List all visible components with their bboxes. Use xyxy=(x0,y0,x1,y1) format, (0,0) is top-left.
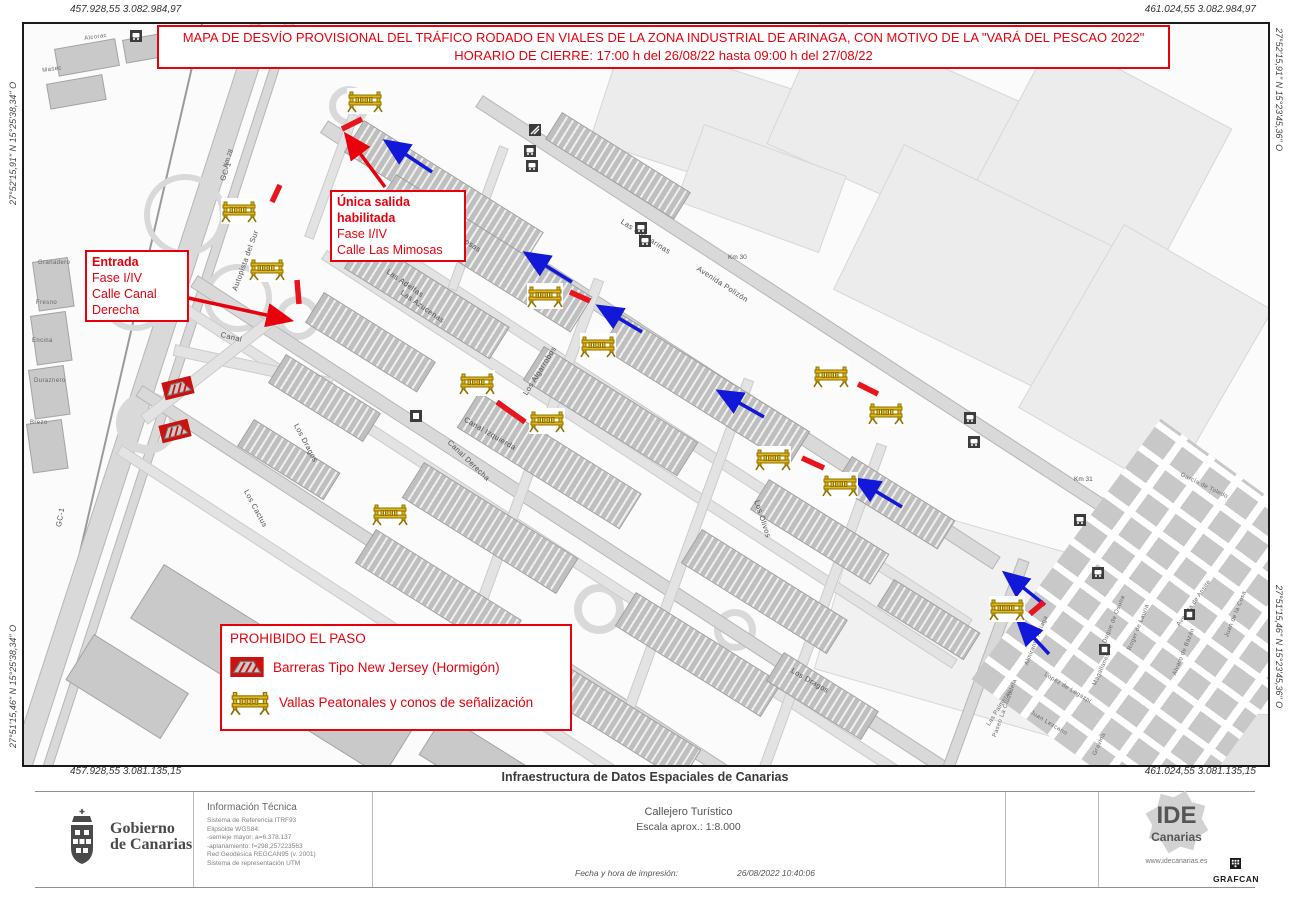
street-label: GC-1 xyxy=(54,507,66,528)
exit-callout-line: Única salida xyxy=(337,194,459,210)
street-label: Duraznero xyxy=(34,378,66,384)
canarias-coat-of-arms-icon xyxy=(63,808,101,866)
legend-item: Vallas Peatonales y conos de señalizació… xyxy=(230,688,562,717)
pedestrian-barrier-icon xyxy=(755,446,791,472)
exit-callout-line: Calle Las Mimosas xyxy=(337,242,459,258)
grafcan-logo: GRAFCAN xyxy=(1213,856,1257,884)
footer-box: Gobierno de Canarias Información Técnica… xyxy=(35,791,1255,888)
legend-item-label: Vallas Peatonales y conos de señalizació… xyxy=(279,695,533,710)
exit-callout: Única salida habilitada Fase I/IV Calle … xyxy=(330,190,466,262)
new-jersey-barrier-icon xyxy=(161,376,194,401)
pedestrian-barrier-icon xyxy=(459,370,495,396)
street-label: Granadero xyxy=(38,260,70,266)
town-block xyxy=(26,419,69,474)
technical-info-line: Red Geodésica REGCAN95 (v. 2001) xyxy=(207,851,367,860)
footer-divider xyxy=(1005,792,1006,887)
ide-wordmark: IDE xyxy=(1098,804,1255,828)
warehouse-block xyxy=(65,634,189,739)
km-marker: Km 30 xyxy=(728,254,747,261)
bus-stop-icon xyxy=(130,30,142,42)
map-scale: Escala aprox.: 1:8.000 xyxy=(372,821,1005,833)
legend-title: PROHIBIDO EL PASO xyxy=(230,631,562,646)
pedestrian-barrier-icon xyxy=(372,501,408,527)
bus-stop-icon xyxy=(635,222,647,234)
town-block xyxy=(28,365,71,420)
pedestrian-barrier-icon xyxy=(230,688,270,717)
legend-item: Barreras Tipo New Jersey (Hormigón) xyxy=(230,657,562,677)
technical-info-title: Información Técnica xyxy=(207,802,367,813)
utm-coordinate-top-left: 457.928,55 3.082.984,97 xyxy=(70,4,181,15)
pedestrian-barrier-icon xyxy=(580,333,616,359)
geo-coordinate-left-top: 27°52'15,91" N 15°25'38,34" O xyxy=(8,82,18,205)
gobierno-word-line: de Canarias xyxy=(110,837,192,853)
product-info: Callejero Turístico Escala aprox.: 1:8.0… xyxy=(372,806,1005,833)
ide-wordmark-sub: Canarias xyxy=(1098,830,1255,844)
gobierno-canarias-logo: Gobierno de Canarias xyxy=(63,808,192,866)
bus-stop-icon xyxy=(1092,567,1104,579)
technical-info-line: Elipsoide WGS84: xyxy=(207,826,367,835)
banner-line-2: HORARIO DE CIERRE: 17:00 h del 26/08/22 … xyxy=(163,47,1164,65)
interchange-loop xyxy=(144,174,226,256)
street-label: Encina xyxy=(32,338,53,344)
road-closed-dash-icon xyxy=(802,458,824,468)
town-block xyxy=(46,74,107,110)
street-label: Los Cactus xyxy=(242,488,269,529)
geo-coordinate-right-top: 27°52'15,91" N 15°23'45,36" O xyxy=(1274,28,1284,151)
pedestrian-barrier-icon xyxy=(813,363,849,389)
street-label: Brezo xyxy=(30,420,48,426)
grafcan-wordmark: GRAFCAN xyxy=(1213,874,1257,884)
new-jersey-barrier-icon xyxy=(230,657,264,677)
poi-icon xyxy=(1184,609,1195,620)
pedestrian-barrier-icon xyxy=(822,472,858,498)
exit-callout-line: Fase I/IV xyxy=(337,226,459,242)
street-label: Fresno xyxy=(36,300,57,306)
bus-stop-icon xyxy=(964,412,976,424)
title-banner: MAPA DE DESVÍO PROVISIONAL DEL TRÁFICO R… xyxy=(157,25,1170,69)
entry-callout-line: Entrada xyxy=(92,254,182,270)
pedestrian-barrier-icon xyxy=(527,283,563,309)
legend-item-label: Barreras Tipo New Jersey (Hormigón) xyxy=(273,660,500,675)
map-canvas: Las Mimosas Las Casuarinas Avenida Poliz… xyxy=(22,22,1270,767)
geo-coordinate-left-bottom: 27°51'15,46" N 15°25'38,34" O xyxy=(8,625,18,748)
bus-stop-icon xyxy=(1074,514,1086,526)
pedestrian-barrier-icon xyxy=(989,596,1025,622)
print-timestamp-label: Fecha y hora de impresión: xyxy=(575,868,678,878)
town-block xyxy=(54,38,120,76)
technical-info-line: -semieje mayor: a=6.378.137 xyxy=(207,834,367,843)
legend: PROHIBIDO EL PASO Barreras Tipo New Jers… xyxy=(220,624,572,731)
banner-line-1: MAPA DE DESVÍO PROVISIONAL DEL TRÁFICO R… xyxy=(163,29,1164,47)
footer-divider xyxy=(193,792,194,887)
product-name: Callejero Turístico xyxy=(372,806,1005,818)
technical-info: Información Técnica Sistema de Referenci… xyxy=(207,802,367,868)
road-closed-dash-icon xyxy=(858,384,878,394)
poi-icon xyxy=(410,410,422,422)
technical-info-line: Sistema de representación UTM xyxy=(207,860,367,869)
utm-coordinate-top-right: 461.024,55 3.082.984,97 xyxy=(1145,4,1256,15)
print-timestamp-value: 26/08/2022 10:40:06 xyxy=(737,868,815,878)
pedestrian-barrier-icon xyxy=(221,198,257,224)
pedestrian-barrier-icon xyxy=(529,408,565,434)
entry-callout: Entrada Fase I/IV Calle Canal Derecha xyxy=(85,250,189,322)
bus-stop-icon xyxy=(639,235,651,247)
technical-info-line: -aplanamiento: f=298,257223563 xyxy=(207,843,367,852)
geo-coordinate-right-bottom: 27°51'15,46" N 15°23'45,36" O xyxy=(1274,585,1284,708)
bus-stop-icon xyxy=(526,160,538,172)
bus-stop-icon xyxy=(524,145,536,157)
entry-callout-line: Derecha xyxy=(92,302,182,318)
pedestrian-barrier-icon xyxy=(249,256,285,282)
street-label: Canal xyxy=(220,330,243,344)
pedestrian-crossing-icon xyxy=(529,124,541,136)
gobierno-word-line: Gobierno xyxy=(110,821,192,837)
footer-title: Infraestructura de Datos Espaciales de C… xyxy=(0,770,1290,784)
road-closed-dash-icon xyxy=(272,185,280,202)
poi-icon xyxy=(1099,644,1110,655)
grafcan-icon xyxy=(1230,858,1241,869)
pedestrian-barrier-icon xyxy=(868,400,904,426)
exit-callout-line: habilitada xyxy=(337,210,459,226)
entry-callout-line: Calle Canal xyxy=(92,286,182,302)
technical-info-line: Sistema de Referencia ITRF93 xyxy=(207,817,367,826)
km-marker: Km 31 xyxy=(1074,476,1093,483)
pedestrian-barrier-icon xyxy=(347,88,383,114)
entry-callout-line: Fase I/IV xyxy=(92,270,182,286)
bus-stop-icon xyxy=(968,436,980,448)
